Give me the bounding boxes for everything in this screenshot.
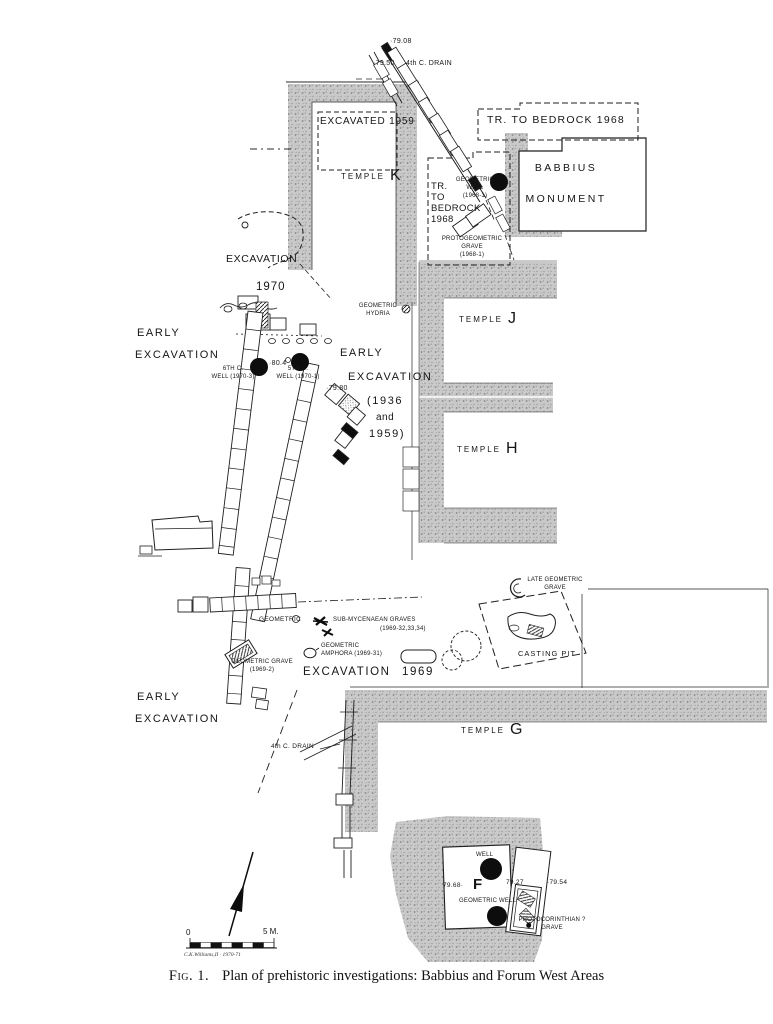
drain-top-label: 4th C. DRAIN (406, 60, 452, 68)
elevation-79-50: ·79.50 (373, 60, 395, 68)
scale-bar (186, 938, 277, 948)
temple-h-word: TEMPLE (457, 445, 501, 456)
casting-pit-area (401, 591, 586, 670)
temple-g-word: TEMPLE (461, 726, 505, 737)
temple-k-word: TEMPLE (341, 172, 385, 183)
well-5thc-label: 5TH C. WELL (1970-1) (269, 366, 327, 382)
well-f-label: WELL (476, 852, 493, 860)
tr-bedrock-top-label: TR. TO BEDROCK 1968 (487, 114, 625, 126)
geometric-grave-1969-label: GEOMETRIC GRAVE (1969-2) (228, 659, 296, 675)
north-arrow (229, 852, 253, 936)
elevation-79-80: ·79.80 (326, 385, 348, 393)
excavation-1970-label-2: 1970 (256, 281, 286, 293)
site-plan-drawing (0, 0, 773, 1024)
draftsman-signature: C.K.Williams,II · 1970-71 (184, 952, 241, 958)
well-f-dot (480, 858, 502, 880)
casting-pit-label: CASTING PIT (518, 649, 576, 658)
drain-bottom-label: 4th C. DRAIN (271, 743, 314, 751)
temple-k-walls (250, 79, 419, 306)
caption-label: Fig. 1. (169, 968, 209, 984)
sub-mycenaean-marks (313, 617, 333, 636)
figure-page: ·79.08 ·79.50 4th C. DRAIN EXCAVATED 195… (0, 0, 773, 1024)
protocorinthian-grave-label: PROTOCORINTHIAN ? GRAVE (514, 917, 590, 933)
trench-west (218, 311, 263, 555)
temple-j-word: TEMPLE (459, 315, 503, 326)
geometric-amphora-label: GEOMETRIC AMPHORA (1969-31) (321, 643, 382, 659)
sub-mycenaean-label-1: SUB-MYCENAEAN GRAVES (333, 617, 416, 625)
temple-h-letter: H (506, 442, 518, 456)
early-excavation-bottom-2: EXCAVATION (135, 713, 219, 725)
protogeometric-grave-label: PROTOGEOMETRIC GRAVE (1968-1) (438, 236, 506, 259)
temple-k-label: TEMPLE K (341, 169, 401, 183)
temple-j-letter: J (508, 312, 516, 326)
babbius-monument-label: BABBIUS MONUMENT (522, 153, 610, 215)
elevation-79-27: 79.27 (506, 879, 524, 887)
geometric-amphora-icon (304, 648, 319, 658)
elevation-79-54: ·79.54 (547, 879, 567, 887)
geometric-hydria-label: GEOMETRIC HYDRIA (356, 303, 400, 319)
well-6thc-label: 6TH C. WELL (1970-3) (204, 366, 262, 382)
temple-g-label: TEMPLE G (461, 723, 522, 737)
figure-caption: Fig. 1.Plan of prehistoric investigation… (0, 968, 773, 985)
excavation-1970-label-1: EXCAVATION (226, 253, 297, 265)
trench-cross (178, 568, 422, 710)
temple-h-label: TEMPLE H (457, 442, 518, 456)
early-excavation-mid-3: (1936 (367, 395, 403, 407)
early-excavation-mid-1: EARLY (340, 347, 383, 359)
excavation-1969-year: 1969 (402, 666, 434, 678)
scale-5m-label: 5 M. (263, 927, 279, 937)
building-f-letter: F (473, 876, 482, 893)
forum-southwest-area (390, 816, 551, 962)
scale-zero-label: 0 (186, 928, 190, 938)
geometric-well-f-dot (487, 906, 507, 926)
sub-mycenaean-label-2: (1969-32,33,34) (380, 626, 426, 634)
excavated-1959-label: EXCAVATED 1959 (320, 116, 415, 127)
geometric-well-f-label: GEOMETRIC WELL (459, 898, 516, 906)
temple-jh-walls (403, 261, 557, 560)
geometric-hydria-icon (402, 305, 410, 313)
temple-j-label: TEMPLE J (459, 312, 516, 326)
temple-k-letter: K (390, 169, 401, 183)
late-geometric-grave-label: LATE GEOMETRIC GRAVE (518, 577, 592, 593)
early-excavation-left-1: EARLY (137, 327, 180, 339)
temple-g-walls (345, 687, 767, 832)
elevation-79-08: ·79.08 (390, 38, 412, 46)
early-excavation-mid-2: EXCAVATION (348, 371, 432, 383)
early-excavation-bottom-1: EARLY (137, 691, 180, 703)
building-annex (138, 516, 213, 556)
early-excavation-mid-4: and (376, 412, 394, 423)
temple-g-letter: G (510, 723, 522, 737)
elevation-79-68: 79.68· (443, 882, 463, 890)
geometric-mid-label: GEOMETRIC (259, 616, 301, 624)
early-excavation-left-2: EXCAVATION (135, 349, 219, 361)
geometric-well-1968-label: GEOMETRIC WELL (1968-1) (446, 177, 504, 200)
caption-text: Plan of prehistoric investigations: Babb… (222, 968, 604, 984)
drain-4thc-top (369, 43, 514, 260)
early-excavation-mid-5: 1959) (369, 428, 405, 440)
excavation-1969-word: EXCAVATION (303, 666, 391, 678)
